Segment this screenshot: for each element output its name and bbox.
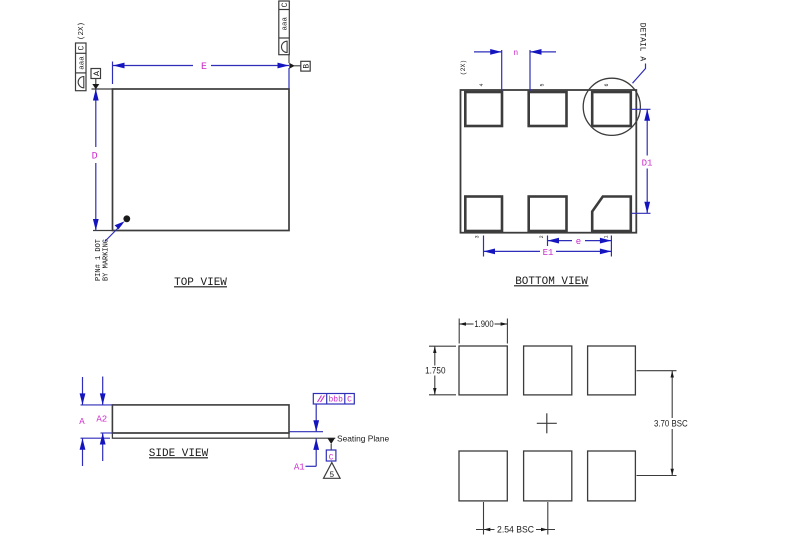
svg-text:E: E (201, 62, 207, 73)
svg-text:Seating Plane: Seating Plane (337, 433, 389, 443)
svg-text:6: 6 (604, 83, 610, 86)
svg-text:BOTTOM VIEW: BOTTOM VIEW (515, 276, 588, 288)
svg-text:aaa: aaa (78, 56, 86, 70)
svg-text:(2X): (2X) (78, 22, 86, 40)
svg-text:C: C (329, 453, 334, 462)
svg-text:D1: D1 (642, 158, 653, 168)
svg-text:2: 2 (539, 235, 545, 238)
svg-text:C: C (78, 46, 87, 51)
svg-text:5: 5 (329, 471, 334, 480)
svg-text:E1: E1 (543, 248, 554, 258)
svg-text:n: n (513, 49, 518, 58)
svg-text:e: e (576, 237, 581, 247)
svg-text:5: 5 (539, 83, 545, 86)
svg-text:A: A (92, 70, 102, 76)
svg-text:A1: A1 (294, 462, 305, 472)
svg-text:2.54 BSC: 2.54 BSC (497, 524, 534, 535)
svg-text:4: 4 (479, 83, 485, 86)
svg-text:(2X): (2X) (460, 60, 467, 76)
svg-text:DETAIL A: DETAIL A (637, 23, 646, 62)
svg-text:3: 3 (475, 235, 481, 238)
svg-text:1.900: 1.900 (474, 318, 493, 329)
svg-text:C: C (281, 2, 290, 7)
svg-text:3.70 BSC: 3.70 BSC (654, 418, 688, 429)
svg-text:C: C (347, 396, 352, 405)
svg-text:A2: A2 (96, 414, 107, 424)
svg-text:BY MARKING: BY MARKING (102, 239, 110, 281)
svg-text:bbb: bbb (328, 396, 343, 405)
svg-text:aaa: aaa (282, 16, 290, 30)
svg-text:1: 1 (603, 235, 609, 238)
svg-text:TOP VIEW: TOP VIEW (174, 277, 227, 289)
svg-text:D: D (92, 152, 98, 163)
svg-text:A: A (79, 417, 85, 427)
svg-text:1.750: 1.750 (425, 365, 445, 376)
svg-text:B: B (302, 64, 311, 69)
